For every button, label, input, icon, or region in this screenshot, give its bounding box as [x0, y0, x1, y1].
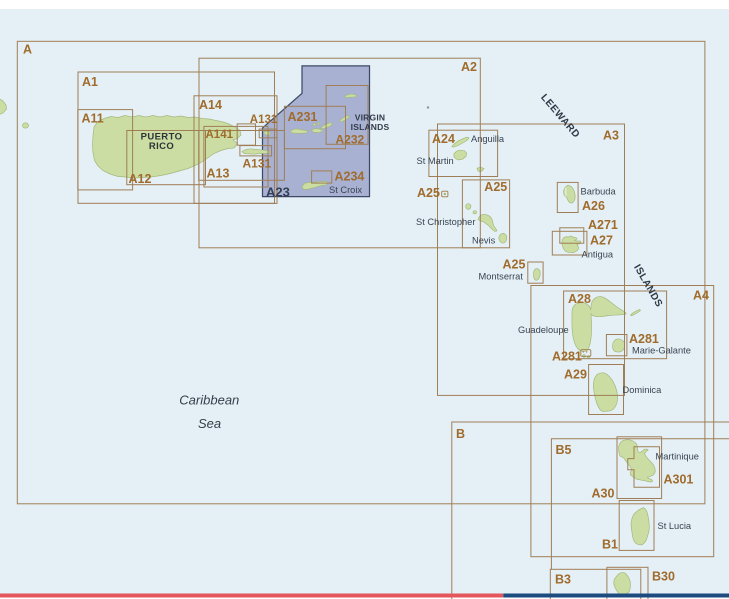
svg-text:Caribbean: Caribbean [179, 393, 239, 408]
svg-text:Marie-Galante: Marie-Galante [632, 345, 691, 355]
svg-text:A28: A28 [568, 292, 591, 306]
svg-text:A232: A232 [336, 132, 365, 146]
svg-text:A29: A29 [564, 367, 587, 381]
svg-text:Montserrat: Montserrat [479, 271, 524, 281]
svg-text:A1: A1 [82, 75, 98, 89]
svg-text:A30: A30 [592, 486, 615, 500]
svg-text:A13: A13 [207, 166, 230, 180]
svg-text:Nevis: Nevis [472, 236, 496, 246]
svg-text:Dominica: Dominica [623, 385, 663, 395]
svg-text:A234: A234 [335, 169, 365, 183]
svg-text:B5: B5 [556, 443, 572, 457]
svg-text:A2: A2 [461, 60, 477, 74]
svg-text:A4: A4 [693, 288, 709, 302]
svg-text:A11: A11 [82, 112, 104, 126]
svg-text:A141: A141 [206, 129, 234, 141]
svg-text:A14: A14 [199, 98, 222, 112]
svg-text:A281: A281 [629, 332, 659, 346]
svg-text:A24: A24 [432, 132, 455, 146]
svg-text:RICO: RICO [149, 141, 174, 152]
svg-text:A: A [23, 43, 32, 57]
svg-text:Sea: Sea [198, 416, 221, 431]
svg-text:B30: B30 [652, 570, 675, 584]
svg-text:A3: A3 [603, 128, 619, 142]
svg-text:A25: A25 [503, 257, 526, 271]
svg-text:A23: A23 [266, 184, 290, 199]
svg-text:St Lucia: St Lucia [658, 521, 692, 531]
svg-text:ISLANDS: ISLANDS [351, 122, 390, 132]
svg-text:Antigua: Antigua [582, 249, 614, 259]
svg-text:Anguilla: Anguilla [471, 134, 505, 144]
svg-text:A25: A25 [484, 180, 507, 194]
svg-text:A231: A231 [288, 110, 318, 124]
svg-text:St Martin: St Martin [417, 156, 454, 166]
svg-text:A25: A25 [417, 186, 440, 200]
svg-text:A301: A301 [664, 473, 694, 487]
svg-text:A12: A12 [129, 172, 152, 186]
svg-text:B3: B3 [555, 573, 571, 587]
svg-text:St Croix: St Croix [329, 185, 362, 195]
svg-text:A131: A131 [250, 114, 278, 126]
svg-text:A281: A281 [552, 349, 582, 363]
svg-text:VIRGIN: VIRGIN [355, 112, 385, 122]
svg-text:B: B [456, 427, 465, 441]
svg-text:A271: A271 [588, 218, 618, 232]
svg-text:A131: A131 [243, 156, 272, 170]
svg-text:Barbuda: Barbuda [581, 187, 617, 197]
svg-text:Martinique: Martinique [656, 452, 699, 462]
svg-text:St Christopher: St Christopher [416, 217, 475, 227]
svg-text:Guadeloupe: Guadeloupe [518, 325, 569, 335]
svg-text:A26: A26 [582, 199, 605, 213]
svg-text:A27: A27 [590, 233, 613, 247]
svg-text:B1: B1 [602, 538, 618, 552]
